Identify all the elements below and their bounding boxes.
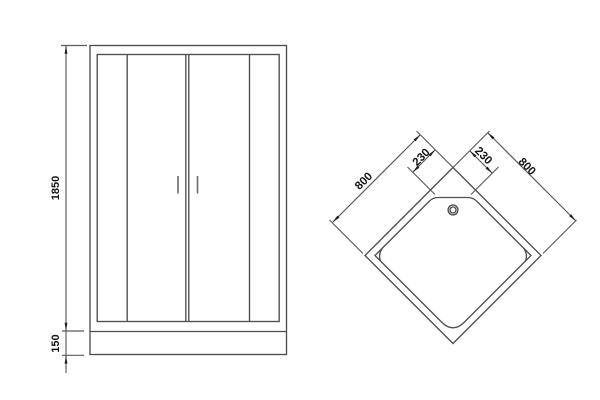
svg-text:800: 800 [516,156,538,178]
svg-text:230: 230 [472,145,494,167]
svg-text:150: 150 [50,334,62,352]
svg-text:1850: 1850 [50,176,62,200]
svg-text:800: 800 [353,170,375,192]
svg-text:230: 230 [411,147,433,169]
